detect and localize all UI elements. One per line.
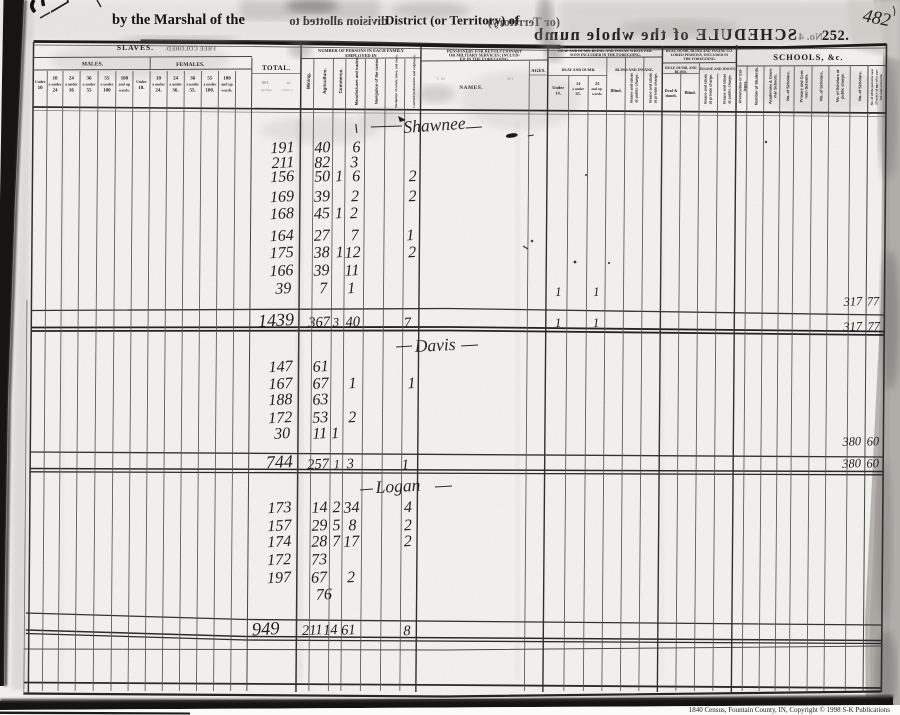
svg-text:100: 100	[121, 77, 129, 82]
svg-text:24.: 24.	[155, 89, 162, 94]
svg-text:45: 45	[314, 205, 331, 223]
svg-text:a under: a under	[152, 83, 165, 87]
svg-text:39: 39	[313, 188, 331, 206]
svg-text:164: 164	[269, 227, 294, 245]
svg-text:Insane and idiots: Insane and idiots	[723, 74, 727, 104]
svg-text:38: 38	[312, 244, 330, 262]
svg-text:No. of Scholars.: No. of Scholars.	[818, 71, 823, 101]
svg-text:30: 30	[273, 425, 291, 443]
svg-text:leges.: leges.	[743, 81, 747, 92]
svg-text:14.: 14.	[555, 91, 561, 96]
svg-text:1: 1	[335, 244, 344, 261]
svg-text:50: 50	[314, 168, 331, 186]
svg-text:14: 14	[323, 622, 338, 639]
svg-text:28: 28	[311, 533, 328, 551]
svg-text:175: 175	[269, 244, 294, 262]
svg-text:a under: a under	[203, 83, 216, 87]
svg-text:2: 2	[403, 533, 412, 550]
svg-text:10: 10	[53, 77, 59, 82]
svg-text:100: 100	[103, 89, 111, 94]
svg-text:Insane and idiots: Insane and idiots	[704, 74, 708, 104]
svg-text:wards.: wards.	[592, 92, 602, 96]
svg-text:12: 12	[344, 244, 361, 262]
svg-text:949: 949	[251, 619, 280, 640]
svg-text:EMPLOYED IN: EMPLOYED IN	[345, 53, 377, 58]
svg-text:public charge.: public charge.	[841, 73, 845, 99]
svg-text:197: 197	[267, 569, 293, 587]
svg-text:Mining.: Mining.	[306, 73, 311, 89]
svg-text:1: 1	[347, 280, 356, 297]
svg-text:FREE COLORED.: FREE COLORED.	[165, 46, 216, 53]
svg-text:SCHOOLS, &c.: SCHOOLS, &c.	[773, 52, 843, 62]
svg-text:61: 61	[341, 622, 356, 639]
svg-text:a under: a under	[186, 83, 199, 87]
svg-text:2: 2	[408, 188, 417, 205]
svg-text:SONS INCLUDED IN THE FOREGOING: SONS INCLUDED IN THE FOREGOING.	[570, 53, 641, 57]
svg-text:1: 1	[348, 375, 357, 392]
svg-text:3: 3	[332, 315, 340, 329]
svg-text:Under: Under	[136, 80, 147, 84]
svg-text:Agriculture.: Agriculture.	[322, 68, 327, 94]
svg-text:100.: 100.	[205, 89, 215, 94]
svg-text:1: 1	[333, 457, 340, 471]
svg-text:10: 10	[38, 86, 44, 91]
svg-text:Navigation of canals, lakes, a: Navigation of canals, lakes, and rivers.	[394, 54, 398, 107]
svg-text:60: 60	[866, 434, 880, 449]
svg-text:Academies & Gram-: Academies & Gram-	[769, 67, 773, 104]
svg-text:77: 77	[867, 319, 881, 334]
svg-text:14: 14	[311, 499, 328, 517]
svg-text:2: 2	[351, 188, 360, 205]
svg-text:36: 36	[190, 77, 196, 82]
svg-text:24: 24	[69, 77, 75, 82]
svg-text:mon Schools.: mon Schools.	[804, 74, 808, 99]
svg-text:Insane and idiots: Insane and idiots	[649, 73, 653, 103]
svg-text:Universities or Col-: Universities or Col-	[738, 68, 742, 104]
svg-text:INSANE AND IDIOTS.: INSANE AND IDIOTS.	[700, 67, 737, 71]
svg-text:36.: 36.	[172, 89, 179, 94]
svg-text:No. of Scholars.: No. of Scholars.	[785, 71, 790, 101]
svg-text:168: 168	[270, 205, 295, 223]
svg-text:60: 60	[866, 456, 880, 471]
svg-text:DEAF AND DUMB.: DEAF AND DUMB.	[562, 68, 596, 72]
svg-text:39: 39	[274, 280, 292, 298]
svg-text:367: 367	[307, 314, 331, 331]
svg-text:Blind.: Blind.	[610, 88, 621, 93]
svg-text:61: 61	[312, 358, 329, 376]
svg-text:1: 1	[331, 425, 340, 442]
svg-text:10: 10	[156, 77, 162, 82]
svg-text:55: 55	[104, 77, 110, 82]
svg-text:ED IN THE FOREGOING.: ED IN THE FOREGOING.	[460, 57, 510, 62]
svg-text:11: 11	[312, 425, 328, 443]
svg-text:63: 63	[312, 391, 329, 409]
svg-text:11: 11	[344, 262, 360, 280]
svg-text:Number of Students.: Number of Students.	[753, 67, 758, 105]
svg-text:2: 2	[408, 244, 417, 261]
svg-text:55: 55	[86, 89, 92, 94]
svg-text:25.: 25.	[575, 91, 581, 96]
svg-text:and up: and up	[221, 83, 233, 87]
svg-text:257: 257	[307, 456, 330, 473]
svg-text:34: 34	[342, 499, 360, 517]
svg-text:2: 2	[348, 409, 357, 426]
svg-text:001: 001	[262, 80, 270, 85]
svg-text:380: 380	[841, 434, 862, 449]
svg-text:wards.: wards.	[119, 89, 130, 93]
svg-text:27: 27	[313, 227, 331, 245]
svg-text:73: 73	[311, 551, 328, 569]
svg-text:1: 1	[335, 205, 344, 222]
svg-text:rebnu a: rebnu a	[281, 88, 293, 92]
svg-text:172: 172	[267, 551, 292, 569]
svg-text:MALES.: MALES.	[82, 62, 104, 68]
svg-text:147: 147	[268, 358, 294, 376]
svg-text:at public charge.: at public charge.	[635, 73, 639, 102]
svg-text:DEAF AND DUMB, BLIND, AND INSA: DEAF AND DUMB, BLIND, AND INSANE WHITE P…	[558, 49, 654, 53]
svg-text:55.: 55.	[190, 89, 197, 94]
svg-text:380: 380	[841, 456, 862, 471]
svg-text:Blind.: Blind.	[684, 90, 695, 95]
svg-text:Primary and Com-: Primary and Com-	[800, 69, 804, 102]
svg-text:156: 156	[270, 168, 295, 186]
svg-text:2: 2	[347, 569, 356, 586]
svg-text:169: 169	[270, 188, 295, 206]
svg-text:317: 317	[842, 294, 863, 309]
svg-text:1439: 1439	[258, 309, 295, 331]
svg-text:10.: 10.	[138, 86, 145, 91]
svg-text:744: 744	[265, 451, 293, 472]
svg-text:76: 76	[316, 586, 333, 604]
svg-text:No. of Scholars.: No. of Scholars.	[857, 71, 862, 101]
svg-text:1: 1	[593, 284, 600, 299]
svg-text:1840 Census, Fountain County,: 1840 Census, Fountain County, IN, Copyri…	[689, 706, 891, 714]
svg-text:qu bna: qu bna	[261, 88, 272, 92]
svg-text:BLIND.: BLIND.	[675, 70, 687, 74]
svg-text:2: 2	[408, 168, 417, 185]
svg-text:1: 1	[401, 457, 409, 473]
svg-text:1: 1	[555, 284, 562, 299]
svg-text:a under: a under	[65, 83, 78, 87]
svg-text:001: 001	[507, 76, 513, 81]
svg-text:5: 5	[332, 517, 341, 534]
svg-text:36: 36	[87, 77, 93, 82]
svg-text:17: 17	[343, 533, 361, 551]
svg-text:wards.: wards.	[221, 89, 232, 93]
svg-text:1: 1	[406, 227, 415, 244]
svg-text:and up: and up	[118, 83, 130, 87]
svg-text:Learned professions and engine: Learned professions and engineers.	[412, 54, 416, 107]
svg-text:1: 1	[335, 168, 344, 185]
svg-text:39: 39	[312, 262, 330, 280]
svg-text:Insane and idiots: Insane and idiots	[630, 73, 634, 103]
svg-text:55: 55	[207, 77, 213, 82]
svg-text:67: 67	[311, 569, 329, 587]
svg-text:division allotted to: division allotted to	[289, 14, 388, 28]
svg-text:77: 77	[866, 294, 880, 309]
svg-text:not read and write.: not read and write.	[879, 73, 883, 100]
svg-text:FEMALES.: FEMALES.	[176, 62, 205, 68]
svg-text:1: 1	[592, 315, 599, 330]
svg-text:166: 166	[269, 262, 294, 280]
svg-text:36: 36	[69, 89, 75, 94]
svg-text:Navigation of the ocean.: Navigation of the ocean.	[374, 58, 379, 104]
svg-text:8: 8	[348, 517, 357, 534]
svg-text:a under: a under	[49, 83, 62, 87]
svg-text:a under: a under	[100, 83, 113, 87]
svg-text:BLIND AND INSANE.: BLIND AND INSANE.	[615, 68, 653, 72]
svg-text:at private charge.: at private charge.	[654, 73, 658, 104]
svg-text:173: 173	[267, 499, 292, 517]
svg-text:1: 1	[407, 375, 416, 392]
svg-text:3: 3	[345, 456, 354, 472]
svg-text:dumb.: dumb.	[665, 93, 677, 98]
svg-text:.ot: .ot	[286, 80, 291, 85]
svg-text:No. of Scholars at: No. of Scholars at	[836, 69, 840, 102]
svg-text:˜1 01: ˜1 01	[435, 76, 445, 81]
svg-text:2: 2	[350, 205, 359, 222]
svg-text:AGES.: AGES.	[531, 69, 545, 74]
svg-text:252.: 252.	[822, 28, 849, 44]
svg-text:24: 24	[52, 89, 58, 94]
svg-text:a under: a under	[169, 83, 182, 87]
svg-text:40: 40	[345, 314, 361, 331]
svg-text:Logan: Logan	[374, 475, 421, 497]
svg-text:2: 2	[404, 517, 413, 534]
svg-text:2: 2	[332, 499, 341, 516]
svg-text:No. 4: No. 4	[798, 31, 823, 43]
svg-text:24: 24	[173, 77, 179, 82]
svg-text:Davis: Davis	[413, 334, 456, 356]
svg-text:4: 4	[404, 499, 413, 516]
svg-text:174: 174	[267, 533, 292, 551]
svg-text:6: 6	[352, 168, 361, 185]
svg-text:317: 317	[842, 319, 863, 334]
svg-text:a under: a under	[83, 83, 96, 87]
svg-text:Manufactures and trades.: Manufactures and trades.	[354, 57, 359, 105]
svg-text:THE FOREGOING.: THE FOREGOING.	[683, 57, 716, 61]
svg-text:and up-: and up-	[591, 87, 604, 91]
svg-text:at public charge.: at public charge.	[728, 74, 732, 103]
svg-text:100: 100	[223, 77, 231, 82]
svg-text:at private charge.: at private charge.	[709, 74, 713, 105]
svg-text:211: 211	[302, 622, 323, 639]
svg-text:1: 1	[554, 315, 561, 330]
svg-text:188: 188	[268, 391, 293, 409]
svg-text:Commerce.: Commerce.	[338, 68, 343, 93]
svg-text:NAMES.: NAMES.	[459, 85, 483, 91]
svg-text:mar Schools.: mar Schools.	[773, 74, 777, 98]
svg-text:TOTAL.: TOTAL.	[262, 64, 291, 72]
svg-text:Under: Under	[35, 80, 46, 84]
svg-text:SLAVES.: SLAVES.	[117, 43, 154, 52]
svg-text:Under: Under	[552, 85, 564, 90]
svg-text:by the Marshal of the: by the Marshal of the	[112, 12, 245, 28]
